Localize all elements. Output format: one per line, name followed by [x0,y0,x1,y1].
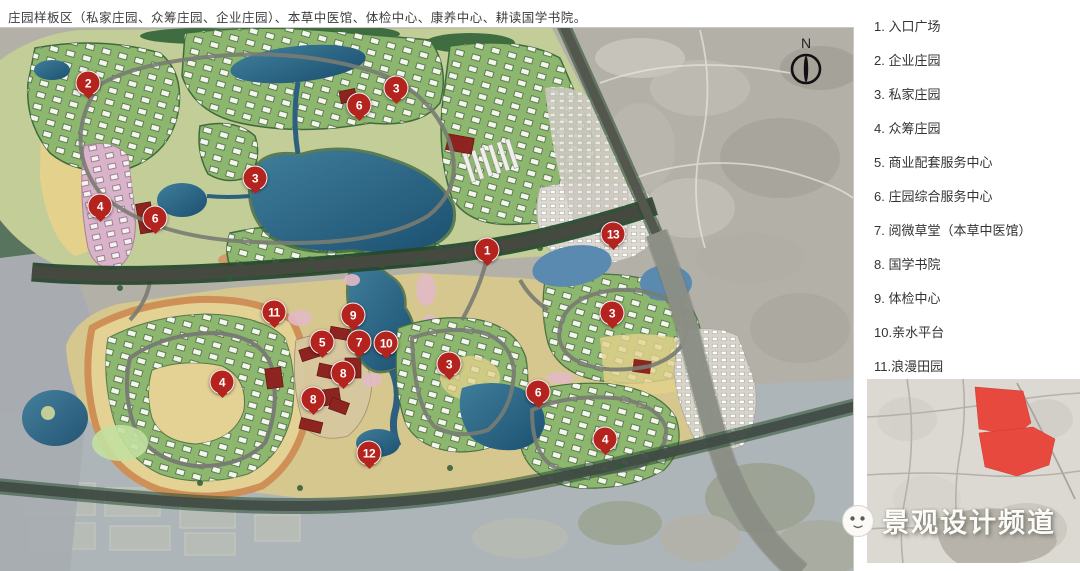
legend-item-1: 1. 入口广场 [874,16,1074,35]
wechat-face-icon [841,504,875,538]
legend-item-6: 6. 庄园综合服务中心 [874,186,1074,205]
legend-item-4: 4. 众筹庄园 [874,118,1074,137]
presentation-board: 庄园样板区（私家庄园、众筹庄园、企业庄园）、本草中医馆、体检中心、康养中心、耕读… [0,0,1080,571]
watermark-text: 景观设计频道 [882,501,1056,540]
legend-item-9: 9. 体检中心 [874,288,1074,307]
legend-item-10: 10.亲水平台 [874,322,1074,341]
page-title: 庄园样板区（私家庄园、众筹庄园、企业庄园）、本草中医馆、体检中心、康养中心、耕读… [8,7,587,26]
watermark: 景观设计频道 [841,501,1056,540]
svg-text:N: N [801,35,811,51]
legend-item-8: 8. 国学书院 [874,254,1074,273]
legend-item-3: 3. 私家庄园 [874,84,1074,103]
legend-item-7: 7. 阅微草堂（本草中医馆） [874,220,1074,239]
master-plan-map: N [0,28,853,571]
legend-item-11: 11.浪漫田园 [874,356,1074,375]
legend-item-5: 5. 商业配套服务中心 [874,152,1074,171]
master-plan-drawing: N [0,28,853,571]
legend-item-2: 2. 企业庄园 [874,50,1074,69]
